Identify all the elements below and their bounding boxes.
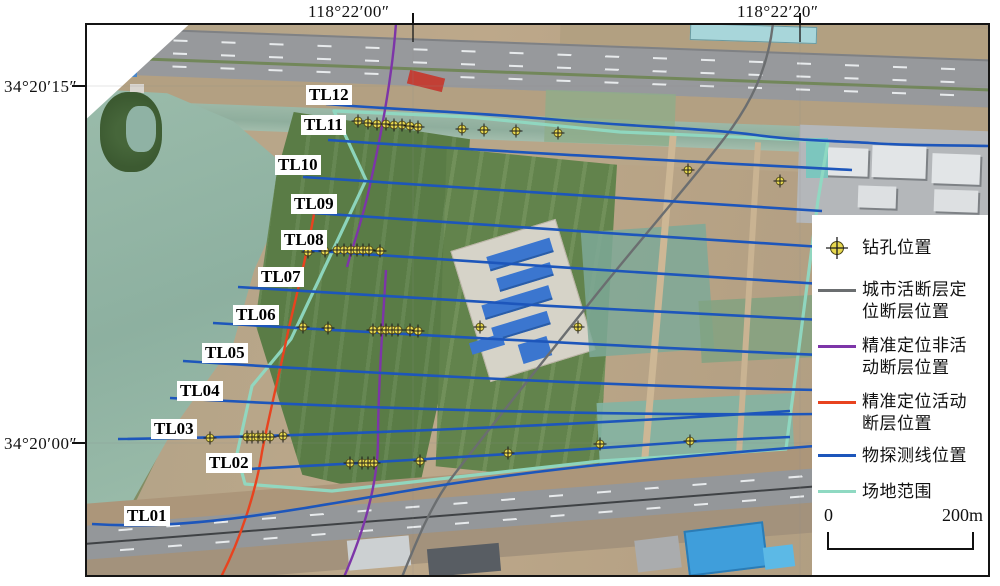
map-figure: 118°22′00″ 118°22′20″ 34°20′15″ 34°20′00… bbox=[0, 0, 1000, 586]
survey-line-label-TL11: TL11 bbox=[301, 115, 346, 135]
scale-end-label: 200m bbox=[942, 505, 983, 526]
borehole-marker bbox=[478, 124, 491, 137]
longitude-label-west: 118°22′00″ bbox=[308, 2, 389, 22]
survey-line-label-TL10: TL10 bbox=[275, 155, 321, 175]
borehole-marker bbox=[552, 127, 565, 140]
survey-line-swatch bbox=[818, 454, 856, 457]
borehole-marker bbox=[362, 117, 375, 130]
survey-line-TL11 bbox=[328, 140, 852, 170]
legend-item-survey-line: 物探测线位置 bbox=[812, 445, 990, 467]
longitude-label-east: 118°22′20″ bbox=[737, 2, 818, 22]
borehole-marker bbox=[368, 457, 381, 470]
legend-item-borehole: 钻孔位置 bbox=[812, 235, 990, 261]
legend-label: 城市活断层定位断层位置 bbox=[862, 279, 980, 323]
graticule-tick bbox=[72, 85, 85, 87]
survey-line-TL04 bbox=[170, 398, 818, 414]
legend-item-site-extent: 场地范围 bbox=[812, 481, 990, 503]
borehole-marker bbox=[502, 447, 515, 460]
legend-item-urban-fault: 城市活断层定位断层位置 bbox=[812, 279, 990, 323]
borehole-symbol-icon bbox=[812, 235, 862, 261]
survey-line-label-TL07: TL07 bbox=[258, 267, 304, 287]
legend-item-active-fault: 精准定位活动断层位置 bbox=[812, 391, 990, 435]
survey-line-label-TL01: TL01 bbox=[124, 506, 170, 526]
legend-swatch-wrap bbox=[812, 335, 862, 348]
legend-label: 精准定位活动断层位置 bbox=[862, 391, 980, 435]
map-frame: TL01TL02TL03TL04TL05TL06TL07TL08TL09TL10… bbox=[85, 23, 990, 577]
survey-line-label-TL02: TL02 bbox=[206, 453, 252, 473]
graticule-tick bbox=[412, 13, 414, 23]
borehole-marker bbox=[414, 455, 427, 468]
site-extent-swatch bbox=[818, 490, 856, 493]
active-fault-swatch bbox=[818, 401, 856, 404]
scale-bar-bracket bbox=[827, 532, 974, 550]
legend-swatch-wrap bbox=[812, 391, 862, 404]
borehole-marker bbox=[456, 123, 469, 136]
borehole-marker bbox=[322, 322, 335, 335]
borehole-marker bbox=[684, 435, 697, 448]
borehole-marker bbox=[774, 175, 787, 188]
legend-label: 场地范围 bbox=[862, 481, 980, 503]
survey-line-label-TL03: TL03 bbox=[151, 419, 197, 439]
legend-label: 物探测线位置 bbox=[862, 445, 980, 467]
legend-label: 钻孔位置 bbox=[862, 237, 980, 259]
survey-line-TL10 bbox=[303, 177, 822, 211]
survey-line-TL12 bbox=[326, 104, 988, 146]
survey-line-label-TL09: TL09 bbox=[291, 194, 337, 214]
latitude-label-south: 34°20′00″ bbox=[4, 434, 77, 454]
borehole-marker bbox=[344, 457, 357, 470]
scale-start-label: 0 bbox=[824, 505, 833, 526]
graticule-tick bbox=[72, 442, 85, 444]
survey-line-label-TL04: TL04 bbox=[177, 381, 223, 401]
scale-bar: 0 200m bbox=[812, 505, 990, 575]
borehole-marker bbox=[510, 125, 523, 138]
legend-panel: 钻孔位置 城市活断层定位断层位置 精准定位非活动断层位置 精准定位活动断层位置 … bbox=[812, 215, 990, 577]
legend-swatch-wrap bbox=[812, 445, 862, 457]
borehole-marker bbox=[204, 432, 217, 445]
graticule-inner-stubs bbox=[413, 25, 800, 42]
survey-line-label-TL08: TL08 bbox=[281, 230, 327, 250]
latitude-label-north: 34°20′15″ bbox=[4, 77, 77, 97]
legend-swatch-wrap bbox=[812, 279, 862, 292]
survey-line-TL09 bbox=[313, 213, 822, 247]
borehole-marker bbox=[277, 430, 290, 443]
borehole-marker bbox=[474, 321, 487, 334]
urban-fault-swatch bbox=[818, 289, 856, 292]
graticule-tick bbox=[799, 13, 801, 23]
borehole-marker bbox=[682, 164, 695, 177]
aerial-imagery: TL01TL02TL03TL04TL05TL06TL07TL08TL09TL10… bbox=[85, 23, 990, 577]
legend-item-inactive-fault: 精准定位非活动断层位置 bbox=[812, 335, 990, 379]
legend-label: 精准定位非活动断层位置 bbox=[862, 335, 980, 379]
inactive-fault-swatch bbox=[818, 345, 856, 348]
survey-line-label-TL05: TL05 bbox=[202, 343, 248, 363]
survey-line-TL07 bbox=[238, 287, 822, 320]
borehole-marker bbox=[352, 115, 365, 128]
legend-swatch-wrap bbox=[812, 481, 862, 493]
survey-line-label-TL12: TL12 bbox=[306, 85, 352, 105]
borehole-marker bbox=[412, 121, 425, 134]
survey-line-label-TL06: TL06 bbox=[233, 305, 279, 325]
